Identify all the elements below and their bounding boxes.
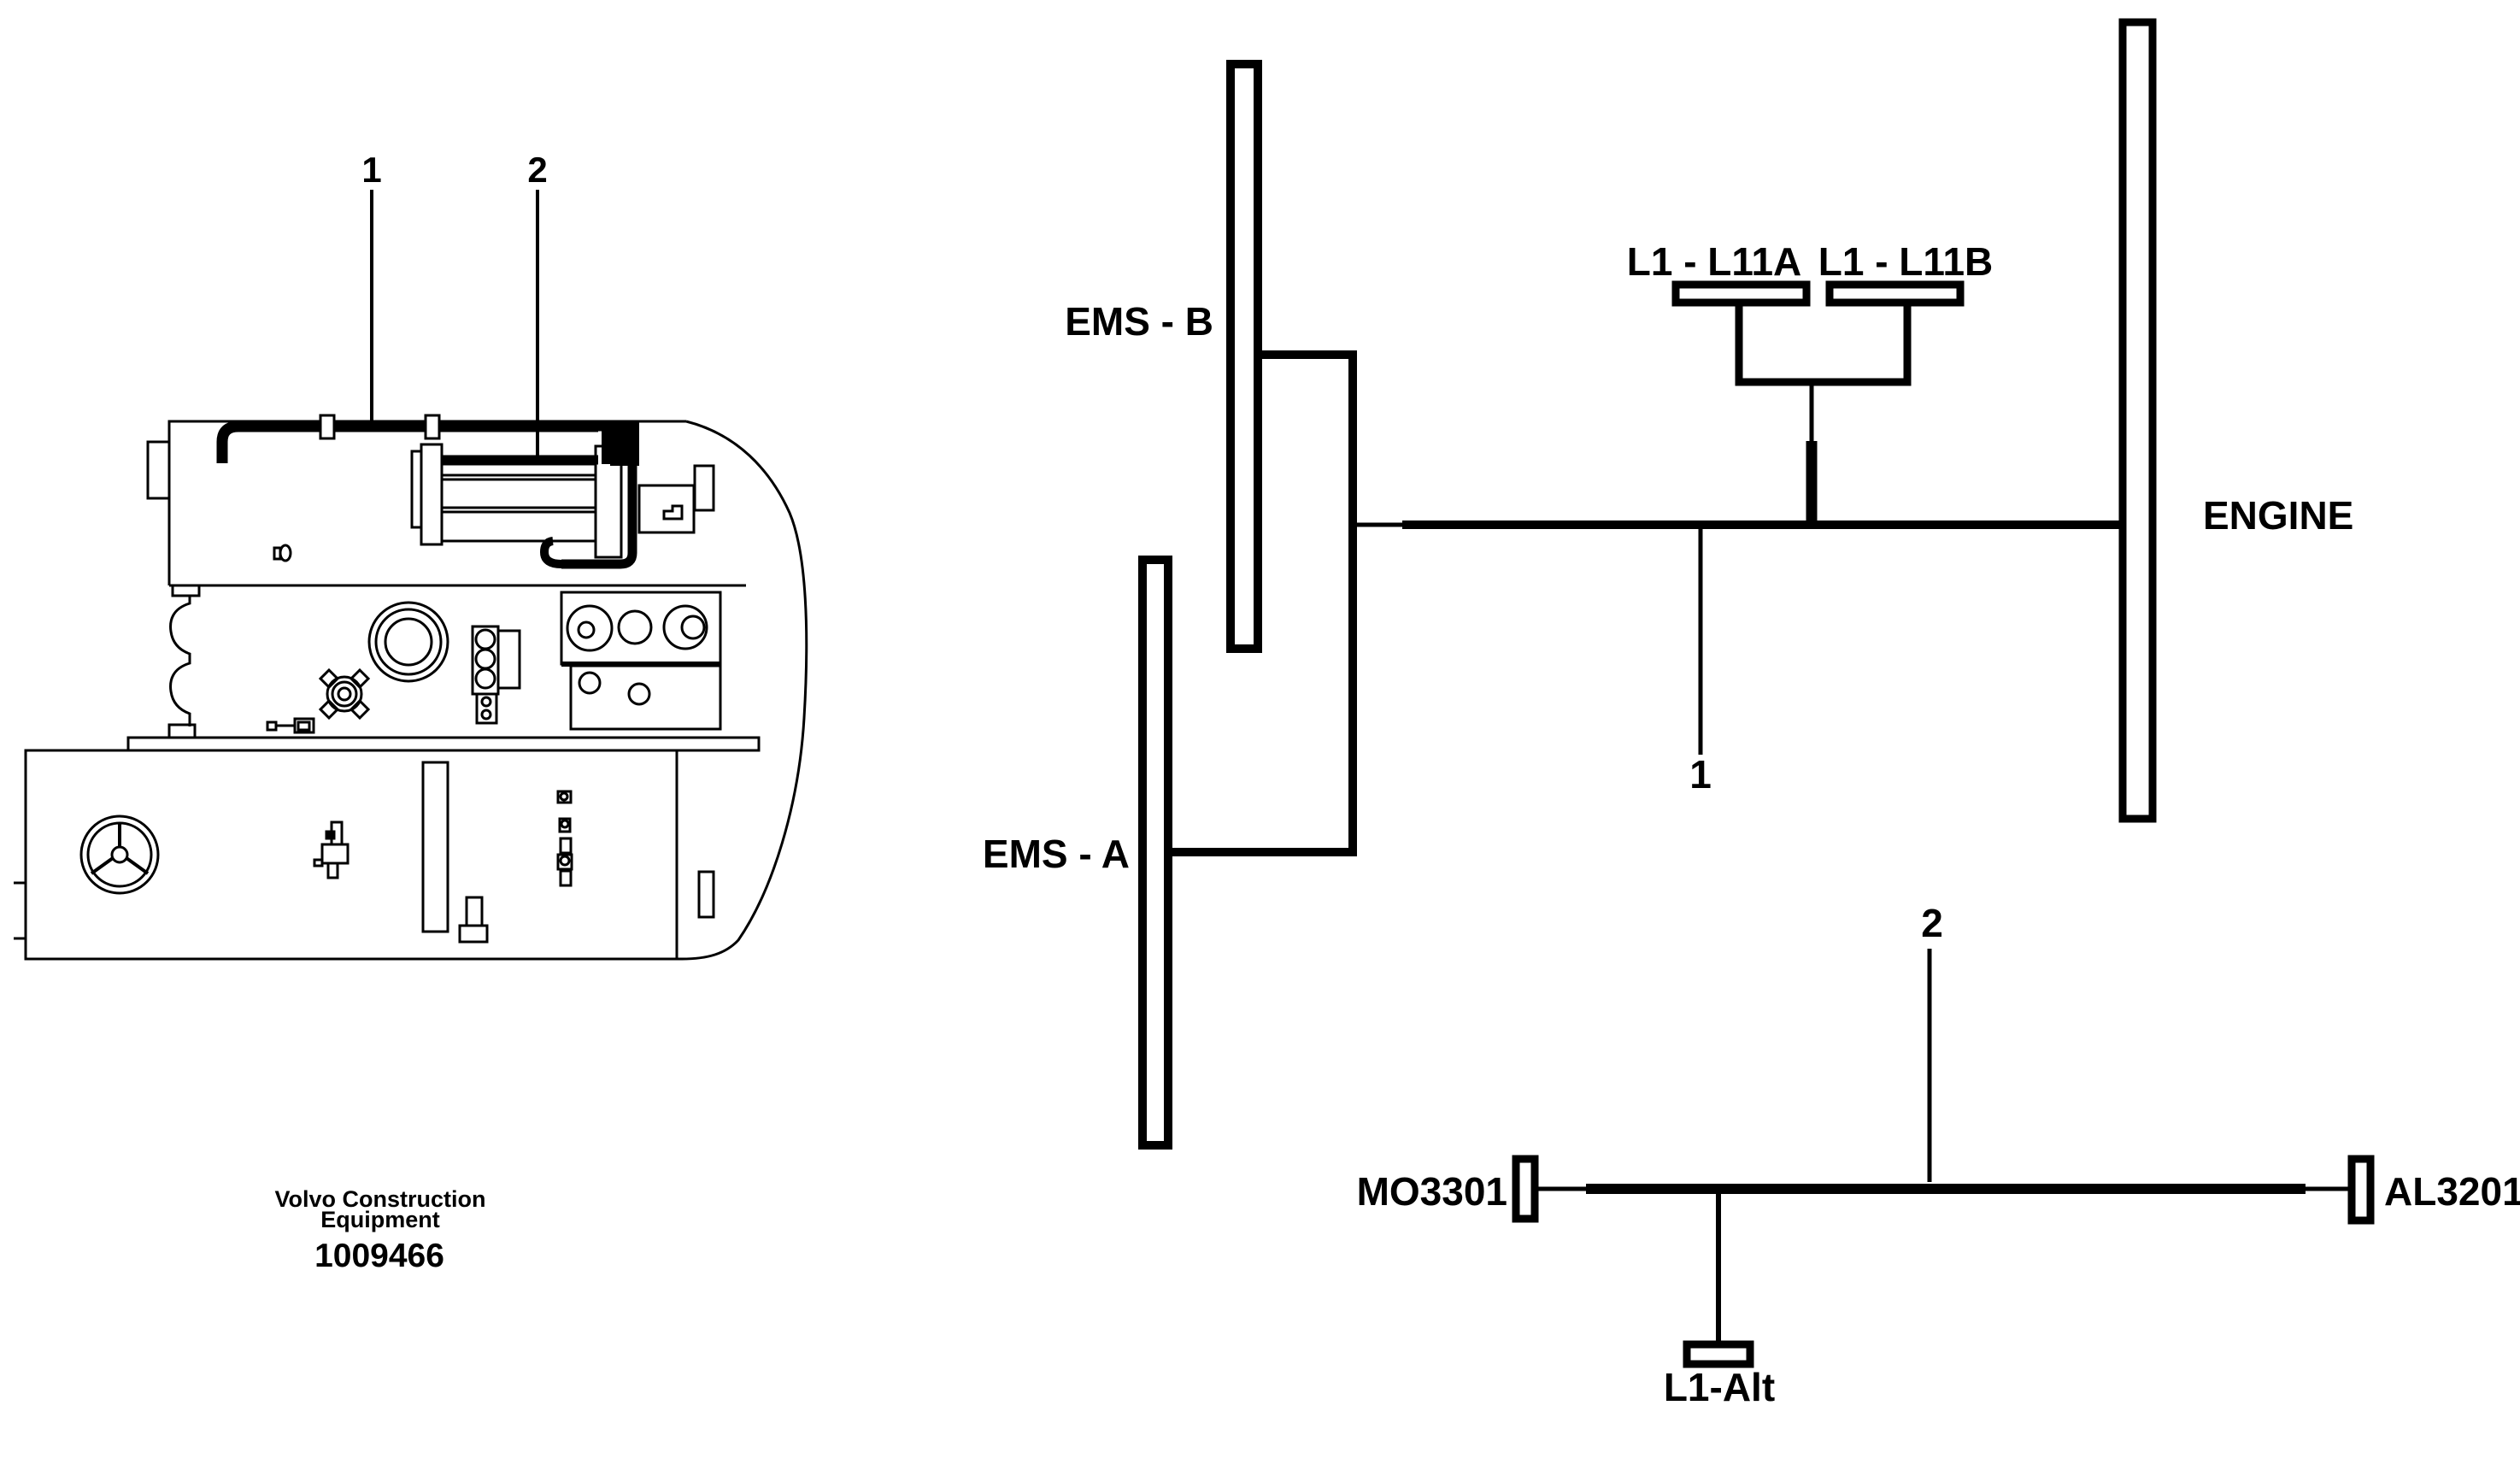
steering-wheel — [81, 816, 158, 893]
wiring-schematic — [1143, 22, 2370, 1364]
caption-block: Volvo Construction Equipment 1009466 — [275, 1186, 486, 1274]
part-number: 1009466 — [314, 1238, 444, 1274]
l1-alt-branch — [1687, 1194, 1750, 1364]
l1-alt-label: L1-Alt — [1664, 1365, 1775, 1409]
ems-b-label: EMS - B — [1065, 299, 1213, 344]
ems-a-label: EMS - A — [983, 832, 1130, 876]
shifter-assembly — [314, 822, 348, 878]
cable-harness-1 — [222, 421, 639, 564]
control-lever — [460, 897, 487, 942]
callout-leader-lines — [372, 190, 537, 456]
cable-2-label: 2 — [1921, 901, 1943, 945]
mo3301-connector — [1516, 1159, 1535, 1219]
l1-alt-connector-bar — [1687, 1344, 1750, 1364]
connection-frame — [1172, 355, 1353, 852]
l1-l11b-label: L1 - L11B — [1818, 239, 1994, 284]
cable-harness-diagram: 1 2 Volvo Construction Equipment 1009466 — [0, 0, 2520, 1482]
dashboard-gauge — [369, 603, 448, 681]
ems-b-node-bar — [1231, 64, 1258, 649]
console-slot — [423, 762, 448, 932]
small-fastener — [274, 545, 291, 561]
caption-line-2: Equipment — [320, 1207, 440, 1232]
machine-callout-1: 1 — [361, 150, 381, 190]
machine-callout-2: 2 — [527, 150, 547, 190]
l1-lamp-junction — [1676, 285, 1960, 526]
mo3301-label: MO3301 — [1357, 1169, 1507, 1214]
diagram-page: 1 2 Volvo Construction Equipment 1009466 — [0, 0, 2520, 1482]
ems-a-node-bar — [1143, 560, 1168, 1145]
machine-line-drawing — [14, 190, 807, 959]
engine-node-bar — [2123, 22, 2153, 819]
cable-1-label: 1 — [1689, 752, 1712, 797]
small-parts-column — [558, 791, 572, 885]
side-slot — [699, 872, 714, 917]
l1-l11a-label: L1 - L11A — [1627, 239, 1802, 284]
l1-l11a-connector-bar — [1676, 285, 1806, 303]
instrument-cluster — [561, 592, 720, 729]
machine-body-outline — [14, 421, 807, 959]
engine-label: ENGINE — [2203, 493, 2353, 538]
l1-l11b-connector-bar — [1830, 285, 1960, 303]
indicator-light-stack — [473, 626, 520, 723]
al3201-connector — [2352, 1159, 2370, 1220]
al3201-label: AL3201 — [2384, 1169, 2520, 1214]
mounting-rosette — [320, 670, 368, 718]
small-connector-pair — [267, 719, 314, 732]
